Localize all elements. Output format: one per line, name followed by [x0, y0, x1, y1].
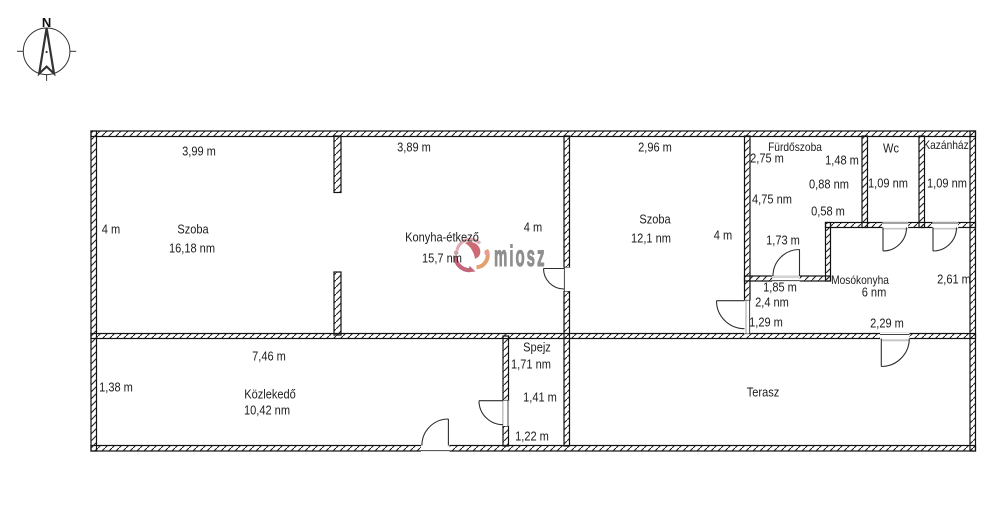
svg-text:N: N	[42, 15, 51, 30]
svg-text:miosz: miosz	[494, 241, 546, 274]
